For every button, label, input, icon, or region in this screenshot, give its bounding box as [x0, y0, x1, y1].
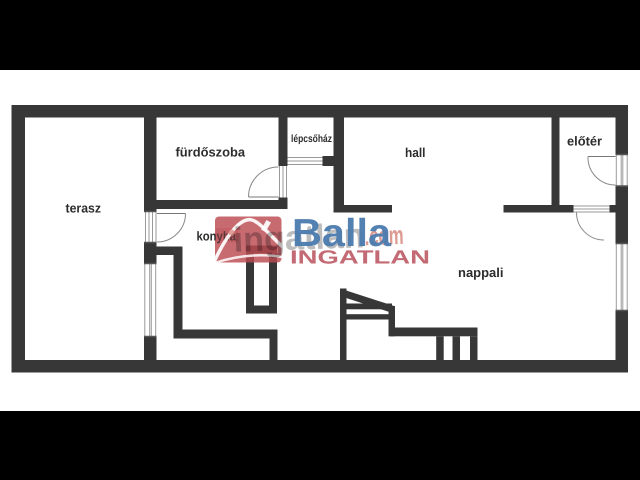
svg-text:hall: hall [405, 145, 426, 160]
svg-text:lépcsőház: lépcsőház [291, 133, 332, 145]
svg-text:előtér: előtér [567, 133, 602, 148]
svg-text:INGATLAN: INGATLAN [290, 248, 430, 269]
svg-text:terasz: terasz [66, 200, 102, 215]
svg-text:nappali: nappali [458, 265, 504, 280]
svg-text:fürdőszoba: fürdőszoba [176, 144, 246, 159]
